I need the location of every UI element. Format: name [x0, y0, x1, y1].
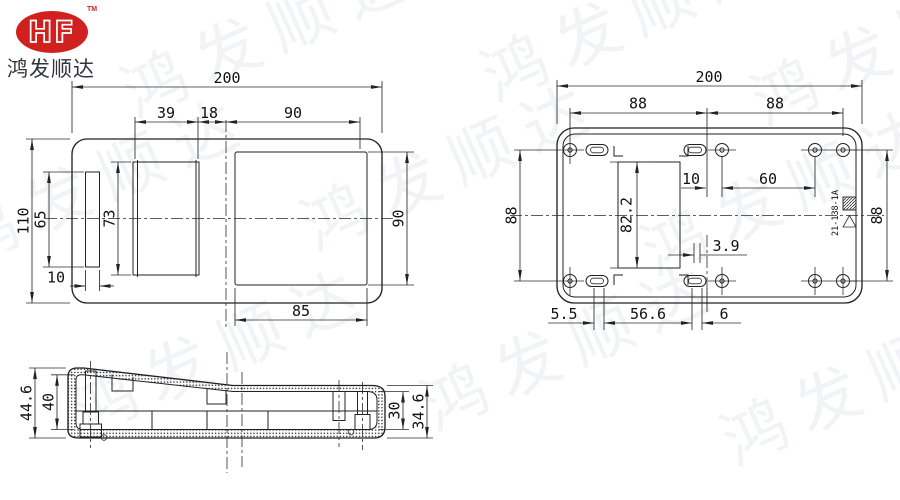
dim-height-right: 88 — [868, 206, 886, 224]
screw-hole — [801, 144, 829, 157]
dim-top-rect-height: 73 — [101, 209, 119, 227]
screw-hole — [556, 267, 584, 295]
technical-drawing: 200 39 18 90 110 65 73 — [0, 0, 900, 500]
mold-mark: 21-138-1A — [831, 190, 856, 236]
dim-offset-3-9: 3.9 — [712, 237, 739, 255]
top-view: 200 39 18 90 110 65 73 — [15, 69, 415, 330]
mold-number: 21-138-1A — [831, 190, 841, 236]
dim-offset-10: 10 — [682, 170, 700, 188]
dim-side-outer-height-right: 34.6 — [410, 393, 428, 429]
mold-logo-stamp — [843, 197, 856, 210]
bottom-view: 200 88 88 10 60 82.2 3.9 — [503, 68, 894, 330]
dim-window-height: 82.2 — [618, 197, 636, 233]
dim-side-inner-height-left: 40 — [40, 393, 58, 411]
dim-side-inner-height-right: 30 — [386, 401, 404, 419]
dim-span-56-6: 56.6 — [630, 305, 666, 323]
dim-height-left: 88 — [503, 206, 521, 224]
screw-hole — [708, 144, 736, 157]
top-view-slot — [86, 172, 100, 267]
dim-top-slot-height: 65 — [32, 210, 50, 228]
dim-top-opening-height: 90 — [390, 209, 408, 227]
dim-hole-pitch-right: 88 — [766, 95, 784, 113]
dim-top-opening-width: 90 — [284, 104, 302, 122]
dim-offset-6: 6 — [719, 305, 728, 323]
drawing-sheet: 鸿发顺达 鸿发顺达 鸿发顺达 鸿发顺达 鸿发顺达 鸿发顺达 鸿发顺达 鸿发顺达 … — [0, 0, 900, 500]
screw-hole — [801, 267, 829, 295]
screw-boss-right — [348, 382, 370, 450]
screw-hole — [708, 267, 736, 295]
dim-offset-5-5: 5.5 — [550, 305, 577, 323]
top-view-body-outline — [72, 139, 382, 303]
dim-top-slot-width: 10 — [47, 269, 65, 287]
dim-top-opening-bottom-width: 85 — [292, 302, 310, 320]
dim-top-overall-height: 110 — [15, 207, 33, 234]
dim-side-outer-height-left: 44.6 — [18, 385, 36, 421]
dim-hole-pitch-left: 88 — [629, 95, 647, 113]
recycle-triangle-icon — [843, 216, 856, 228]
dim-top-rect-width: 39 — [157, 104, 175, 122]
side-view: 44.6 40 30 34.6 — [18, 352, 434, 473]
dim-pitch-60: 60 — [759, 170, 777, 188]
screw-hole — [556, 136, 584, 164]
dim-top-overall-width: 200 — [213, 69, 240, 87]
dim-bottom-overall-width: 200 — [695, 68, 722, 86]
dim-top-gap: 18 — [200, 104, 218, 122]
